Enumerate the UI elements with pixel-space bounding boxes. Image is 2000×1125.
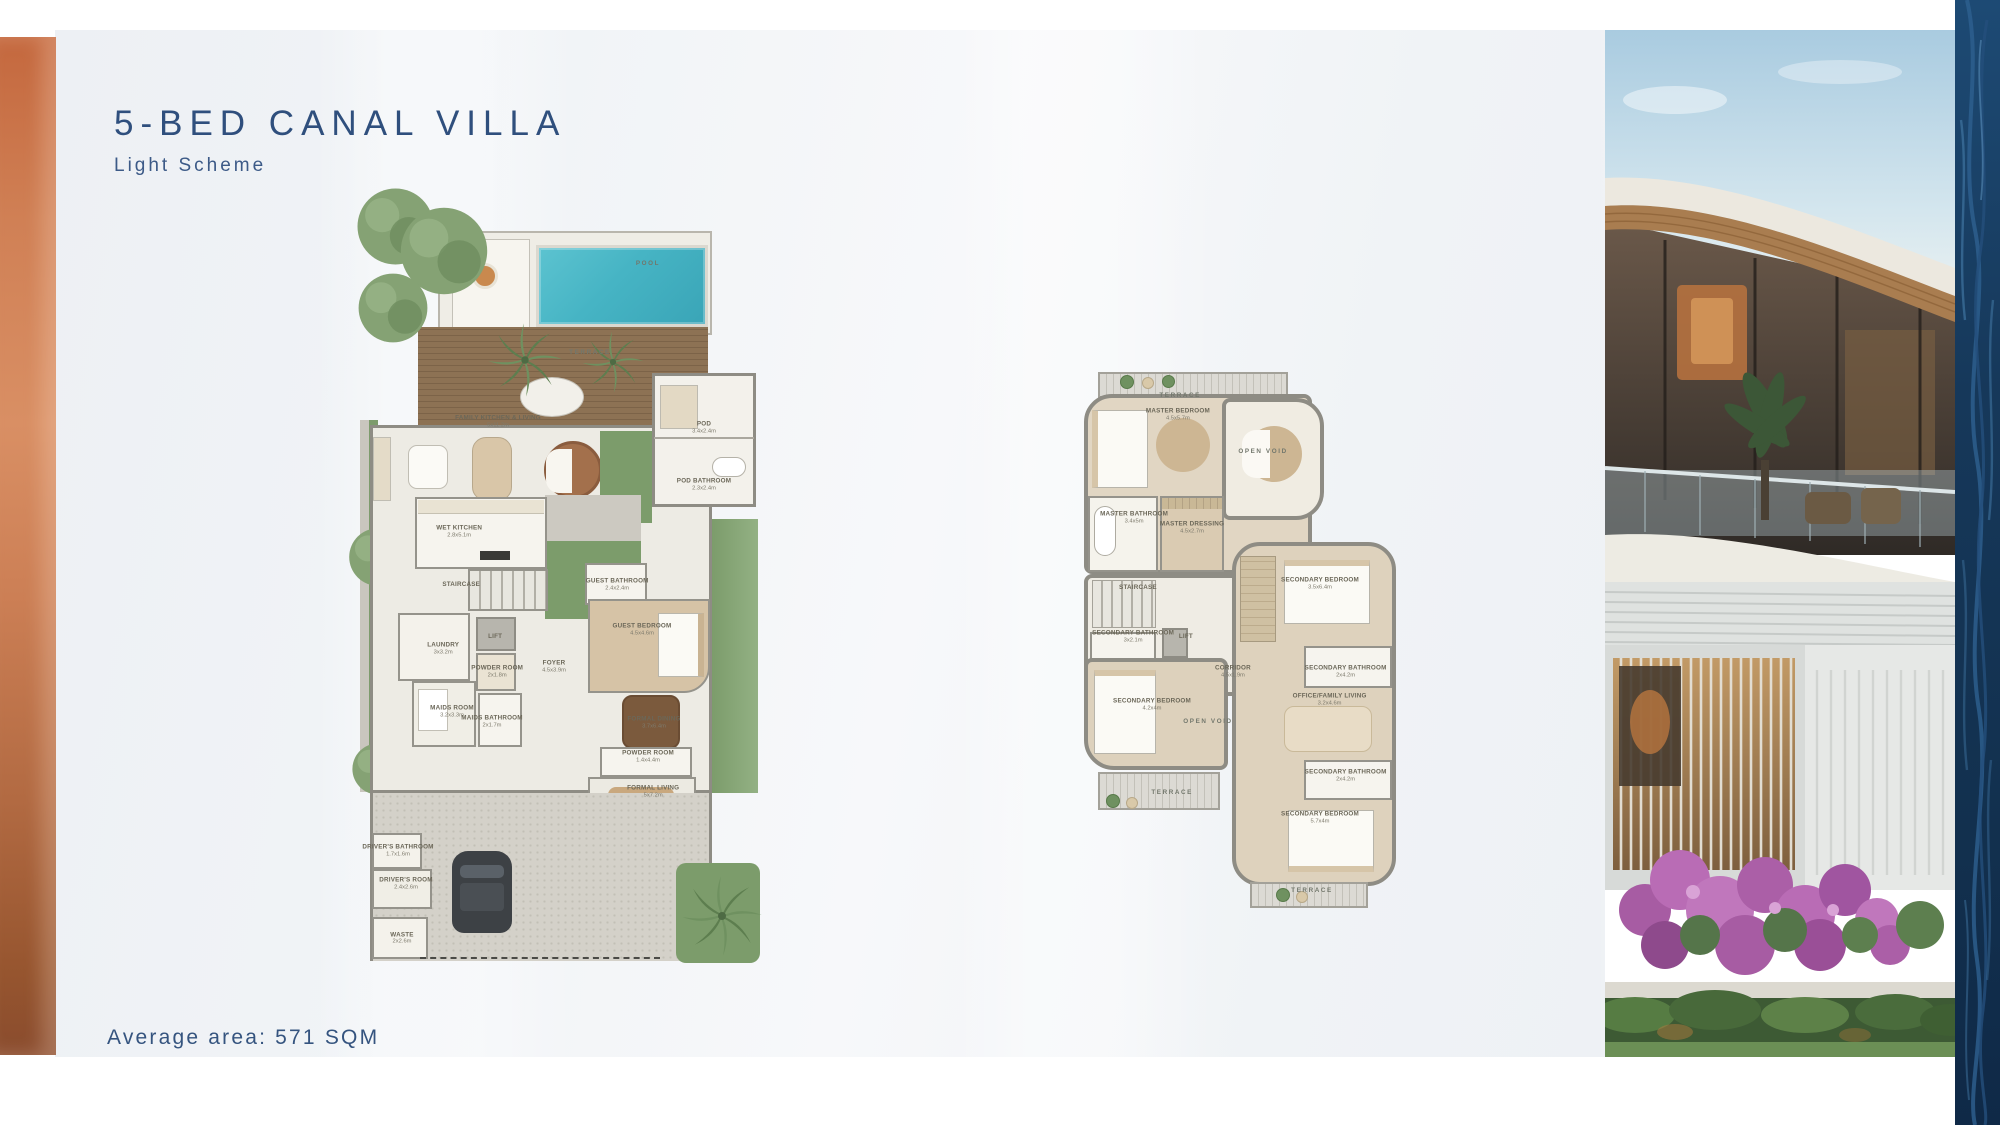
room-label-foyer: FOYER4.5x3.9m [542,660,566,675]
ground-floor-plan: POOLTERRACEFAMILY KITCHEN & LIVING5x11.2… [360,185,760,970]
page-subtitle: Light Scheme [114,155,566,177]
room-label-secondary-bedroom: SECONDARY BEDROOM4.2x4m [1113,697,1191,712]
page-title: 5-BED CANAL VILLA [114,104,566,144]
water-edge-photo [1955,0,2000,1125]
room-label-open-void: OPEN VOID [1183,718,1232,726]
room-label-staircase: STAIRCASE [1119,584,1157,592]
accent-bar [0,37,56,1055]
room-label-staircase: STAIRCASE [442,581,480,589]
room-label-lift: LIFT [1179,633,1193,641]
room-label-open-void: OPEN VOID [1238,448,1287,456]
room-label-maids-bathroom: MAIDS BATHROOM2x1.7m [461,715,522,730]
room-label-lift: LIFT [488,633,502,641]
room-label-master-bedroom: MASTER BEDROOM4.5x5.7m [1146,407,1210,422]
room-label-master-dressing: MASTER DRESSING4.5x2.7m [1160,521,1224,536]
room-label-office-family-living: OFFICE/FAMILY LIVING3.2x4.6m [1293,693,1367,708]
room-label-terrace: TERRACE [1159,392,1201,400]
room-label-driver-s-room: DRIVER'S ROOM2.4x2.6m [379,876,432,891]
room-label-laundry: LAUNDRY3x3.2m [427,642,459,657]
room-label-maids-room: MAIDS ROOM3.2x3.3m [430,704,474,719]
slat-screen [1613,658,1795,870]
room-label-guest-bathroom: GUEST BATHROOM2.4x2.4m [586,578,649,593]
room-label-secondary-bathroom: SECONDARY BATHROOM2x4.2m [1305,664,1387,679]
room-label-secondary-bedroom: SECONDARY BEDROOM5.7x4m [1281,811,1359,826]
room-label-secondary-bathroom: SECONDARY BATHROOM3x2.1m [1092,629,1174,644]
room-label-master-bathroom: MASTER BATHROOM3.4x5m [1100,511,1168,526]
room-label-family-kitchen-living: FAMILY KITCHEN & LIVING5x11.2m [455,415,541,430]
first-floor-labels: TERRACEMASTER BEDROOM4.5x5.7mOPEN VOIDMA… [1080,370,1400,910]
bottom-hedge [1605,990,1955,1057]
room-label-guest-bedroom: GUEST BEDROOM4.5x4.6m [613,623,672,638]
villa-photo-illustration [1605,30,1955,1057]
room-label-secondary-bedroom: SECONDARY BEDROOM3.5x6.4m [1281,576,1359,591]
room-label-pod-bathroom: POD BATHROOM2.3x2.4m [677,477,731,492]
average-area-text: Average area: 571 SQM [107,1026,379,1050]
room-label-secondary-bathroom: SECONDARY BATHROOM2x4.2m [1305,769,1387,784]
header: 5-BED CANAL VILLA Light Scheme [114,104,566,177]
room-label-terrace: TERRACE [569,349,611,357]
first-floor-plan: TERRACEMASTER BEDROOM4.5x5.7mOPEN VOIDMA… [1080,370,1400,910]
room-label-terrace: TERRACE [1151,789,1193,797]
louver-band [1605,582,1955,648]
water-illustration [1955,0,2000,1125]
room-label-terrace: TERRACE [1291,887,1333,895]
room-label-powder-room: POWDER ROOM1.4x4.4m [622,750,674,765]
room-label-powder-room: POWDER ROOM2x1.8m [471,664,523,679]
room-label-waste: WASTE2x2.6m [390,931,413,946]
room-label-pool: POOL [636,260,660,268]
ground-floor-labels: POOLTERRACEFAMILY KITCHEN & LIVING5x11.2… [360,185,760,970]
villa-exterior-photo [1605,30,1955,1057]
room-label-formal-dining: FORMAL DINING3.7x6.4m [627,715,680,730]
room-label-pod: POD3.4x2.4m [692,421,716,436]
room-label-wet-kitchen: WET KITCHEN2.8x5.1m [436,525,482,540]
room-label-driver-s-bathroom: DRIVER'S BATHROOM1.7x1.6m [362,843,433,858]
room-label-formal-living: FORMAL LIVING5x7.2m [627,784,679,799]
room-label-corridor: CORRIDOR4.5x1.9m [1215,664,1251,679]
